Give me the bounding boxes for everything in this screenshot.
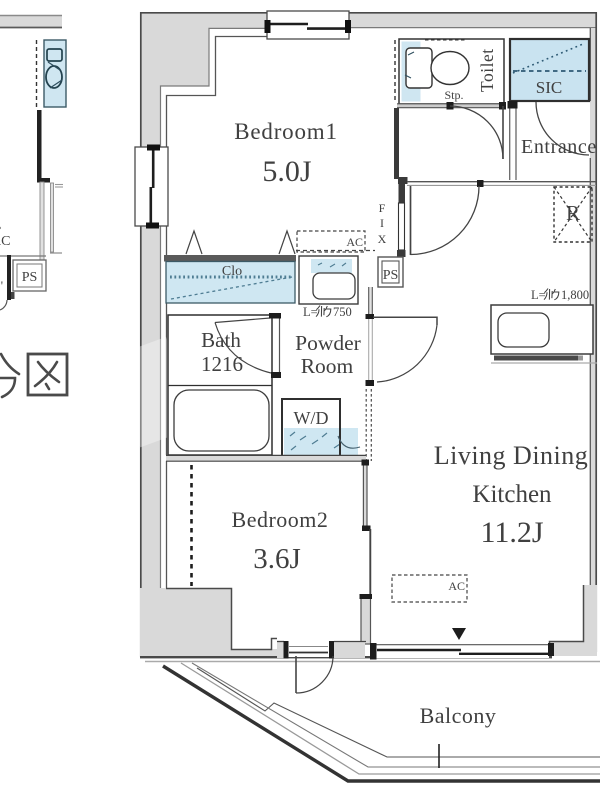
svg-text:3.6J: 3.6J — [253, 543, 301, 575]
svg-text:AC: AC — [448, 579, 465, 593]
svg-text:": " — [0, 278, 3, 293]
svg-text:Balcony: Balcony — [420, 703, 497, 728]
svg-text:F: F — [379, 201, 386, 215]
svg-text:Clo: Clo — [222, 264, 242, 279]
svg-text:W/D: W/D — [294, 408, 329, 428]
svg-text:11.2J: 11.2J — [480, 516, 543, 549]
svg-text:Toilet: Toilet — [477, 48, 497, 92]
svg-text:X: X — [378, 232, 387, 246]
svg-text:5.0J: 5.0J — [262, 155, 312, 188]
svg-text:Bedroom2: Bedroom2 — [232, 507, 329, 532]
svg-text:R: R — [566, 201, 580, 225]
svg-text:PS: PS — [22, 270, 38, 285]
svg-text:SIC: SIC — [536, 78, 562, 97]
svg-text:Room: Room — [301, 354, 354, 378]
svg-text:AC: AC — [0, 234, 10, 249]
svg-text:AC: AC — [346, 235, 363, 249]
svg-text:*: * — [0, 224, 2, 236]
svg-text:PS: PS — [383, 268, 399, 283]
svg-text:750: 750 — [333, 305, 352, 319]
svg-text:L=: L= — [531, 288, 546, 302]
svg-text:Stp.: Stp. — [444, 88, 463, 102]
svg-text:Powder: Powder — [295, 331, 361, 355]
svg-text:L=: L= — [303, 305, 318, 319]
svg-text:Living Dining: Living Dining — [434, 441, 589, 470]
svg-text:Bedroom1: Bedroom1 — [234, 119, 338, 144]
svg-text:I: I — [380, 216, 384, 230]
svg-text:Kitchen: Kitchen — [472, 481, 552, 508]
svg-text:1,800: 1,800 — [561, 288, 589, 302]
svg-text:Bath: Bath — [201, 328, 241, 352]
